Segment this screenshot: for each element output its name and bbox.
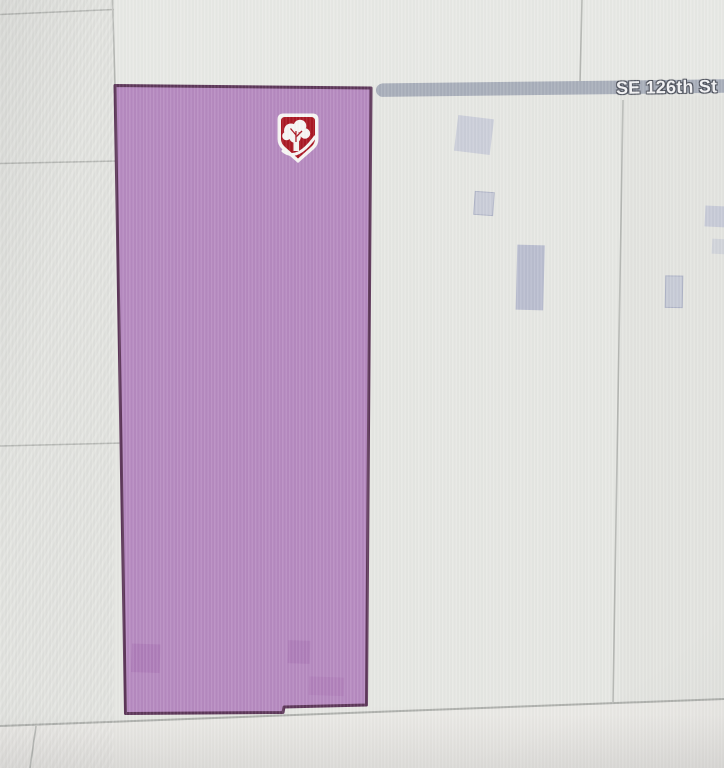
parcel-line-top-right (580, 0, 582, 83)
building-footprint (454, 115, 494, 155)
parcel-line-bottom-left (30, 726, 36, 768)
map-canvas (0, 0, 724, 768)
map-viewport[interactable]: SE 126th St (0, 0, 724, 768)
parcel-line-vertical-right (613, 100, 623, 702)
building-footprint (712, 239, 724, 255)
building-footprint (665, 276, 683, 308)
building-footprint (474, 191, 495, 215)
street-name-label: SE 126th St (616, 77, 718, 97)
parcel-building-footprint (131, 644, 160, 673)
parcel-line-vertical-left (113, 0, 116, 85)
building-footprint (516, 245, 545, 311)
parcel-line-left-1 (0, 161, 118, 164)
parcel-line-left-2 (0, 443, 123, 446)
parcel-line-top-left (0, 10, 114, 15)
parcel-building-footprint (309, 676, 345, 696)
property-parcel[interactable] (115, 86, 371, 714)
building-footprints-right (454, 115, 724, 310)
parcel-building-footprint (288, 640, 311, 664)
building-footprint (704, 205, 724, 227)
